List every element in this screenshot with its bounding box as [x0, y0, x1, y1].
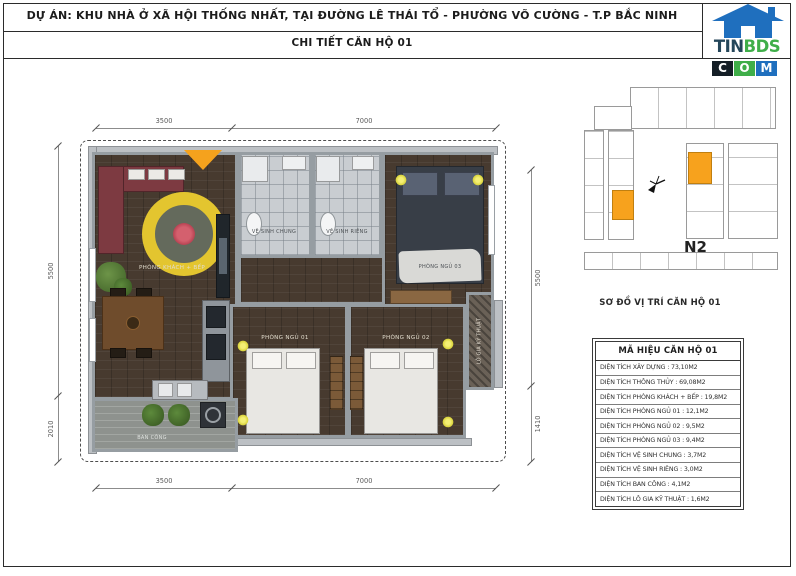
building-block: [584, 130, 604, 240]
area-table: MÃ HIỆU CĂN HỘ 01 DIỆN TÍCH XÂY DỰNG : 7…: [592, 338, 744, 510]
floor-plan: PHÒNG KHÁCH + BẾP VỆ SINH CHUNG VỆ SINH …: [0, 60, 580, 540]
area-row-value: 19,8M2: [705, 394, 728, 401]
dim-line-left: [58, 146, 59, 462]
area-table-title: MÃ HIỆU CĂN HỘ 01: [596, 342, 740, 361]
area-row-value: 3,0M2: [684, 466, 703, 473]
area-row-label: DIỆN TÍCH THÔNG THỦY: [600, 379, 673, 386]
unit-boundary-dashed: [80, 140, 506, 462]
logo-letter-m: M: [756, 61, 777, 76]
building-block: [608, 130, 634, 240]
area-row-label: DIỆN TÍCH BAN CÔNG: [600, 481, 666, 488]
area-row-label: DIỆN TÍCH VỆ SINH RIÊNG: [600, 466, 678, 473]
building-block: [630, 87, 776, 129]
building-block: [584, 252, 778, 270]
dim-left-lower: 2010: [47, 421, 55, 438]
logo-box-rule: [702, 4, 703, 58]
area-row-value: 73,10M2: [671, 364, 697, 371]
compass-icon: [646, 175, 666, 199]
dim-bottom-right: 7000: [356, 477, 373, 485]
area-row-value: 4,1M2: [672, 481, 691, 488]
dim-bottom-left: 3500: [156, 477, 173, 485]
location-caption: SƠ ĐỒ VỊ TRÍ CĂN HỘ 01: [580, 298, 740, 308]
area-row: DIỆN TÍCH PHÒNG NGỦ 03 : 9,4M2: [596, 434, 740, 449]
area-row-label: DIỆN TÍCH PHÒNG KHÁCH + BẾP: [600, 394, 699, 401]
dim-top-left: 3500: [156, 117, 173, 125]
area-row-value: 69,08M2: [679, 379, 705, 386]
dim-right-lower: 1410: [534, 416, 542, 433]
logo-word-bds: BDS: [744, 37, 781, 56]
plan-sheet: DỰ ÁN: KHU NHÀ Ở XÃ HỘI THỐNG NHẤT, TẠI …: [0, 0, 796, 576]
area-row-value: 9,4M2: [686, 437, 705, 444]
area-row-label: DIỆN TÍCH VỆ SINH CHUNG: [600, 452, 682, 459]
area-row: DIỆN TÍCH LÔ GIA KỸ THUẬT : 1,6M2: [596, 492, 740, 506]
area-row-label: DIỆN TÍCH XÂY DỰNG: [600, 364, 665, 371]
logo-letter-c: C: [712, 61, 733, 76]
area-row: DIỆN TÍCH THÔNG THỦY : 69,08M2: [596, 376, 740, 391]
building-block: [594, 106, 632, 130]
detail-title: CHI TIẾT CĂN HỘ 01: [4, 37, 700, 49]
area-row-value: 12,1M2: [686, 408, 709, 415]
area-row-label: DIỆN TÍCH LÔ GIA KỸ THUẬT: [600, 496, 685, 503]
header-rule-1: [4, 31, 702, 32]
area-row-label: DIỆN TÍCH PHÒNG NGỦ 03: [600, 437, 680, 444]
area-row: DIỆN TÍCH VỆ SINH RIÊNG : 3,0M2: [596, 463, 740, 478]
logo-letter-o: O: [734, 61, 755, 76]
dim-line-right: [531, 170, 532, 462]
header-rule-2: [4, 58, 790, 59]
dim-line-bottom: [96, 488, 496, 489]
logo-com: COM: [712, 57, 790, 76]
unit-highlight: [612, 190, 634, 220]
area-row-value: 9,5M2: [686, 423, 705, 430]
dim-top-right: 7000: [356, 117, 373, 125]
area-row: DIỆN TÍCH BAN CÔNG : 4,1M2: [596, 478, 740, 493]
area-row-value: 1,6M2: [691, 496, 710, 503]
dim-line-top: [96, 128, 496, 129]
project-title: DỰ ÁN: KHU NHÀ Ở XÃ HỘI THỐNG NHẤT, TẠI …: [4, 9, 700, 22]
logo-word-tin: TIN: [714, 37, 744, 56]
unit-highlight: [688, 152, 712, 184]
area-row: DIỆN TÍCH PHÒNG NGỦ 01 : 12,1M2: [596, 405, 740, 420]
area-row: DIỆN TÍCH PHÒNG NGỦ 02 : 9,5M2: [596, 419, 740, 434]
building-block: [728, 143, 778, 239]
area-row-value: 3,7M2: [687, 452, 706, 459]
location-diagram: N2 SƠ ĐỒ VỊ TRÍ CĂN HỘ 01: [580, 80, 780, 320]
area-row: DIỆN TÍCH XÂY DỰNG : 73,10M2: [596, 361, 740, 376]
area-row-label: DIỆN TÍCH PHÒNG NGỦ 02: [600, 423, 680, 430]
dim-left-upper: 5500: [47, 263, 55, 280]
dim-right-upper: 5500: [534, 270, 542, 287]
area-row: DIỆN TÍCH PHÒNG KHÁCH + BẾP : 19,8M2: [596, 390, 740, 405]
area-row: DIỆN TÍCH VỆ SINH CHUNG : 3,7M2: [596, 448, 740, 463]
area-row-label: DIỆN TÍCH PHÒNG NGỦ 01: [600, 408, 680, 415]
block-label: N2: [684, 238, 707, 256]
logo-word: TINBDS: [704, 37, 790, 56]
tinbds-logo: TINBDS COM: [704, 4, 790, 76]
